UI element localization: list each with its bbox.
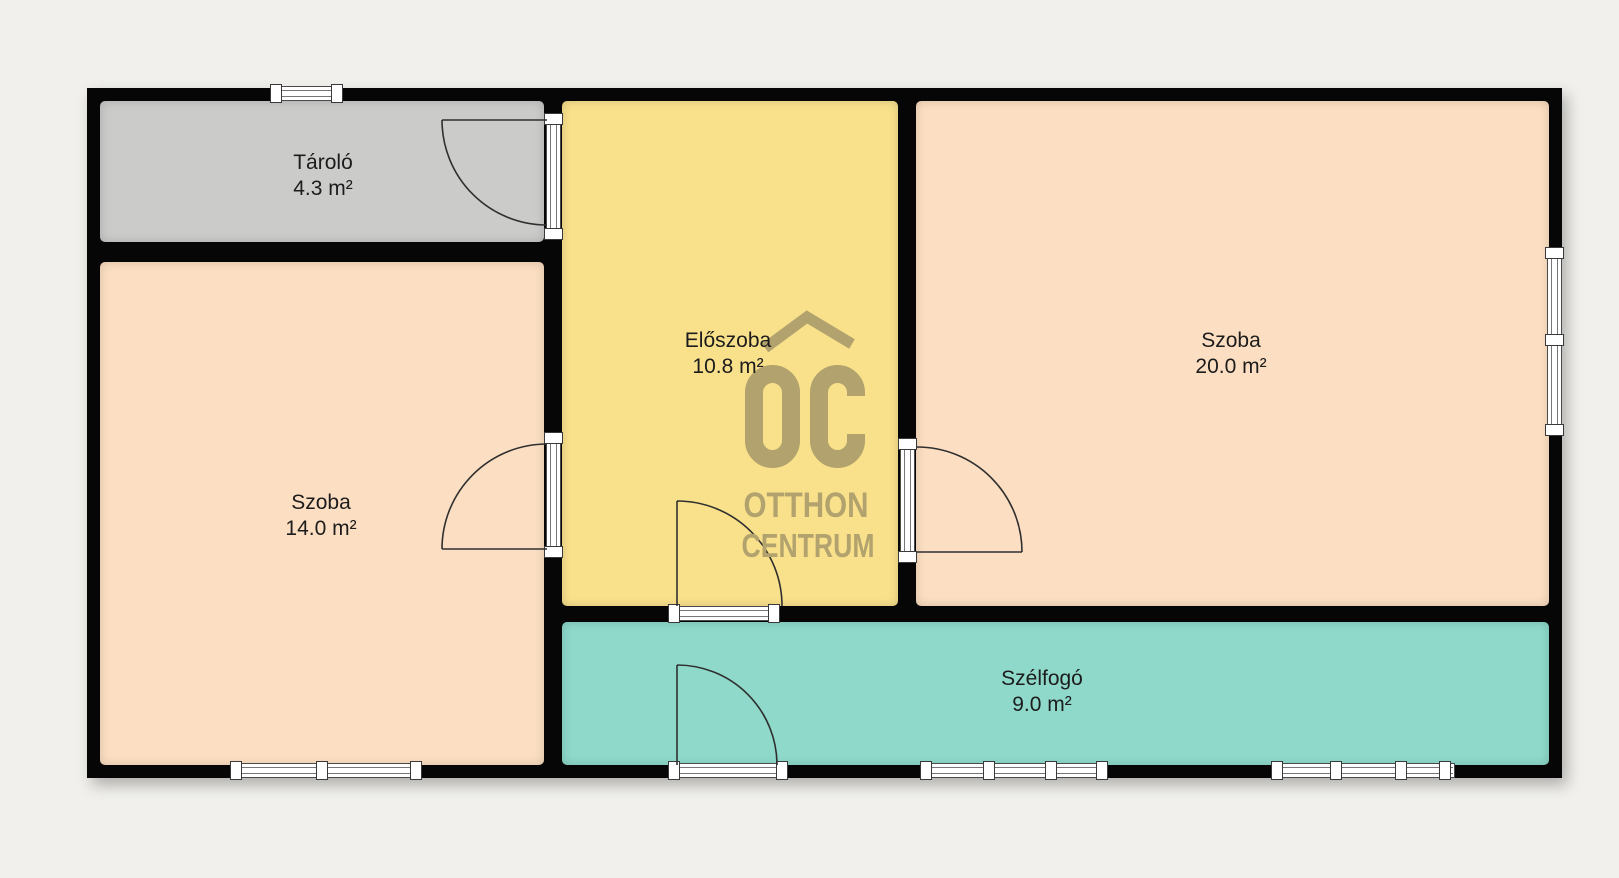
room-name: Előszoba — [685, 328, 771, 354]
door-frame-endcap — [768, 604, 780, 623]
door-frame-endcap — [668, 604, 680, 623]
door-frame-endcap — [668, 761, 680, 780]
room-name: Tároló — [293, 150, 353, 176]
window — [1271, 763, 1455, 778]
door-frame-endcap — [898, 551, 917, 563]
room-area: 10.8 m² — [685, 354, 771, 380]
room-area: 20.0 m² — [1195, 354, 1266, 380]
entry-door-threshold — [668, 763, 788, 778]
door-frame — [900, 438, 915, 563]
door-frame-endcap — [544, 228, 563, 240]
room-area: 9.0 m² — [1001, 692, 1083, 718]
room-label-left: Szoba 14.0 m² — [285, 490, 356, 542]
window-pane-divider — [1330, 761, 1342, 780]
door-frame-endcap — [544, 113, 563, 125]
room-label-right: Szoba 20.0 m² — [1195, 328, 1266, 380]
window-endcap — [1439, 761, 1451, 780]
door-frame-endcap — [898, 438, 917, 450]
room-name: Szélfogó — [1001, 666, 1083, 692]
door-frame-endcap — [544, 546, 563, 558]
room-name: Szoba — [285, 490, 356, 516]
window-pane-divider — [1545, 334, 1564, 346]
window-endcap — [1271, 761, 1283, 780]
door-frame — [546, 113, 561, 240]
window-endcap — [1545, 424, 1564, 436]
window-endcap — [1545, 247, 1564, 259]
window-pane-divider — [983, 761, 995, 780]
window-endcap — [920, 761, 932, 780]
room-name: Szoba — [1195, 328, 1266, 354]
floorplan: OTTHON CENTRUM Tároló 4.3 m² Szoba 14.0 … — [87, 88, 1562, 778]
room-label-windbreak: Szélfogó 9.0 m² — [1001, 666, 1083, 718]
window-endcap — [331, 84, 343, 103]
window-endcap — [410, 761, 422, 780]
page: { "page": { "background_color": "#f1f0ec… — [0, 0, 1619, 878]
window-pane-divider — [1395, 761, 1407, 780]
page-background: OTTHON CENTRUM Tároló 4.3 m² Szoba 14.0 … — [0, 0, 1619, 878]
door-frame — [546, 432, 561, 558]
window — [920, 763, 1108, 778]
room-area: 4.3 m² — [293, 176, 353, 202]
door-threshold — [668, 606, 780, 621]
door-frame-endcap — [544, 432, 563, 444]
window-pane-divider — [1045, 761, 1057, 780]
room-label-hallway: Előszoba 10.8 m² — [685, 328, 771, 380]
window-pane-divider — [316, 761, 328, 780]
room-label-storage: Tároló 4.3 m² — [293, 150, 353, 202]
door-frame-endcap — [776, 761, 788, 780]
window-endcap — [230, 761, 242, 780]
window-endcap — [1096, 761, 1108, 780]
window-endcap — [270, 84, 282, 103]
room-area: 14.0 m² — [285, 516, 356, 542]
